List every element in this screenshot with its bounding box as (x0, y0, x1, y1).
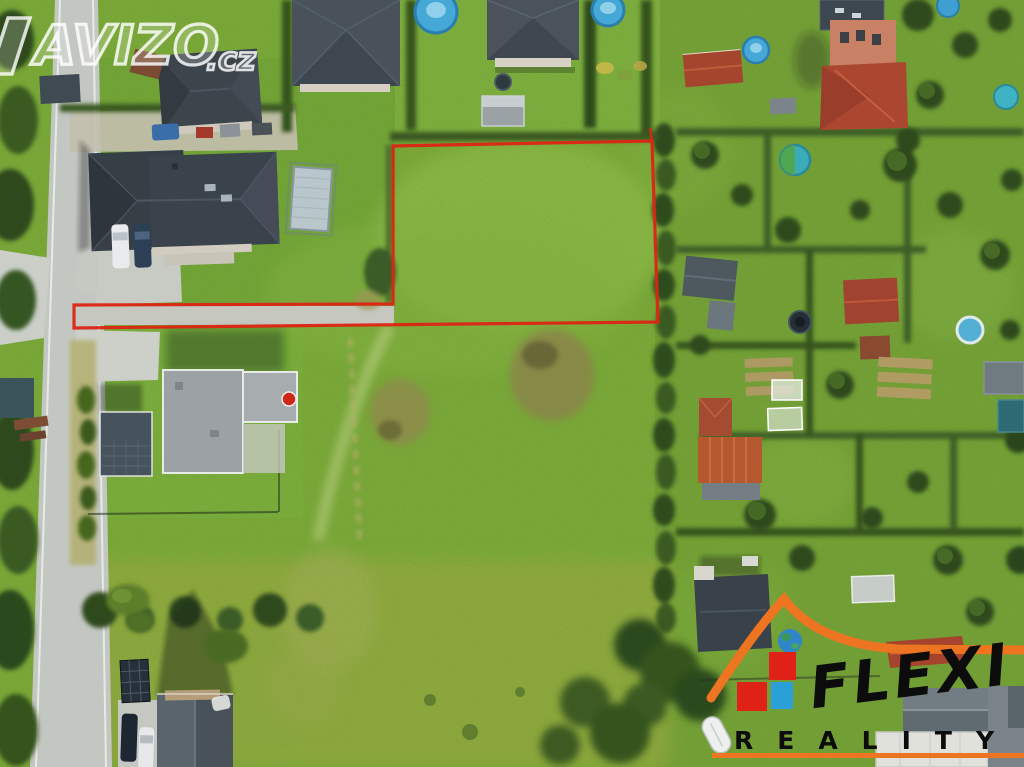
round-pool-6 (994, 85, 1018, 109)
logo-underline (712, 753, 1024, 758)
gray-shed-right (984, 362, 1024, 394)
light-shed (852, 575, 895, 602)
greenhouse-frame-1 (772, 380, 802, 400)
red-parasol (282, 392, 296, 406)
garage-roof (100, 412, 152, 476)
round-pool-7 (937, 0, 959, 17)
round-pool-5 (957, 317, 983, 343)
logo-square-red-top (769, 652, 796, 680)
brown-shed (860, 335, 891, 359)
solar-panels (120, 659, 150, 702)
red-cottage-top (683, 49, 744, 87)
watermark-brand-text: AVIZO (30, 14, 219, 77)
watermark-avizo: AVIZO .cz (0, 14, 256, 78)
aerial-scene: AVIZO .cz FLEXI REALITY (0, 0, 1024, 767)
globe-pool (778, 629, 802, 653)
covered-pool (286, 162, 337, 235)
teal-shed (998, 400, 1024, 432)
red-hip-cottage (699, 398, 732, 436)
access-lane (76, 306, 394, 325)
logo-square-blue (771, 682, 793, 709)
red-cottage-mid (843, 278, 899, 325)
corrugated-roof-cottage (698, 437, 762, 500)
house-top-middle (292, 0, 400, 92)
aerial-photo: AVIZO .cz FLEXI REALITY (0, 0, 1024, 767)
logo-square-red-left (737, 682, 767, 711)
watermark-tld-text: .cz (206, 40, 256, 78)
logo-subtitle-text: REALITY (734, 726, 1018, 755)
greenhouse-frame-2 (768, 407, 803, 430)
